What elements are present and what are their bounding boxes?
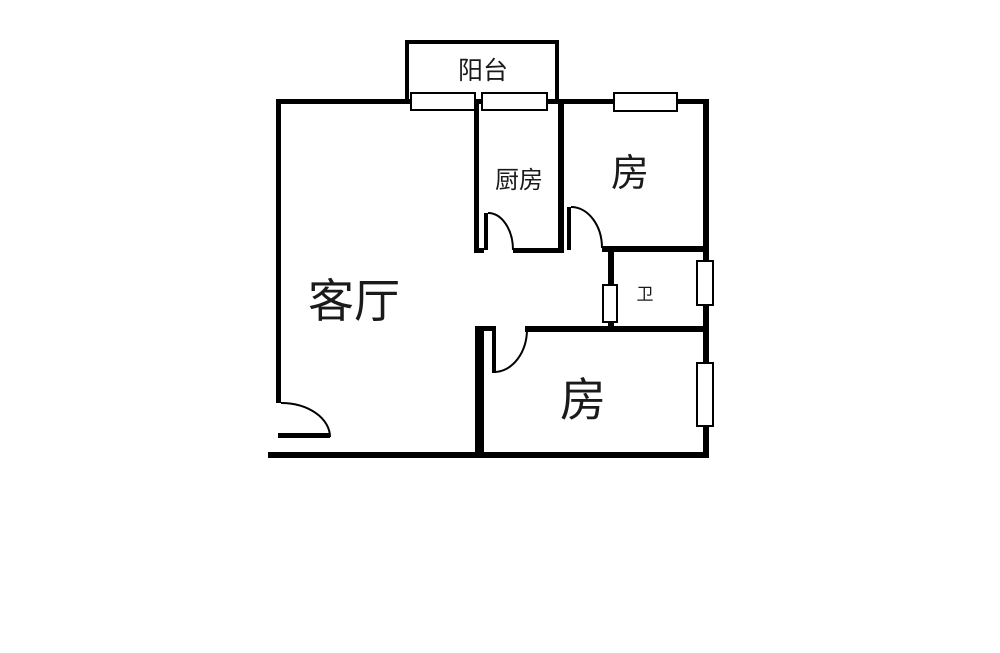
balcony-label: 阳台 bbox=[458, 56, 508, 85]
window-top-bedroom bbox=[614, 93, 677, 111]
wall-outer-bottom bbox=[268, 452, 709, 458]
kitchen-door-leaf bbox=[484, 213, 488, 250]
wall-kitchen-bottom-right bbox=[513, 248, 564, 253]
wall-balcony-left bbox=[405, 40, 409, 104]
bedroom-bottom-label: 房 bbox=[560, 373, 606, 427]
kitchen-door-arc bbox=[488, 213, 513, 250]
bedroom-bottom-door-leaf bbox=[492, 329, 496, 373]
wall-bathroom-bottom bbox=[525, 326, 709, 332]
living-room-label: 客厅 bbox=[308, 274, 400, 328]
bedroom-top-door-leaf bbox=[567, 207, 571, 250]
entry-door-arc bbox=[281, 403, 330, 437]
wall-middle-vertical bbox=[475, 326, 484, 452]
bedroom-top-label: 房 bbox=[611, 151, 649, 195]
wall-kitchen-right bbox=[558, 99, 564, 252]
bedroom-top-door-arc bbox=[571, 207, 602, 248]
bedroom-bottom-door-arc bbox=[494, 329, 527, 372]
entry-door-leaf bbox=[278, 433, 330, 438]
wall-outer-left bbox=[276, 99, 281, 403]
wall-bedroom-top-bottom bbox=[602, 246, 709, 252]
wall-kitchen-bottom-left-stub bbox=[474, 248, 484, 253]
floor-plan-page: 阳台 厨房 房 客厅 卫 房 bbox=[0, 0, 1000, 653]
window-right-bedroom bbox=[697, 363, 713, 426]
window-top-balcony-left bbox=[411, 93, 475, 110]
bathroom-label: 卫 bbox=[637, 285, 654, 305]
wall-kitchen-left bbox=[474, 99, 479, 253]
window-right-bathroom bbox=[697, 261, 713, 305]
kitchen-label: 厨房 bbox=[495, 166, 543, 194]
wall-balcony-right bbox=[555, 40, 559, 104]
bathroom-door-panel bbox=[603, 285, 617, 322]
wall-balcony-top bbox=[405, 40, 559, 44]
window-top-balcony-right bbox=[482, 93, 547, 110]
floor-plan-canvas: 阳台 厨房 房 客厅 卫 房 bbox=[0, 0, 1000, 653]
